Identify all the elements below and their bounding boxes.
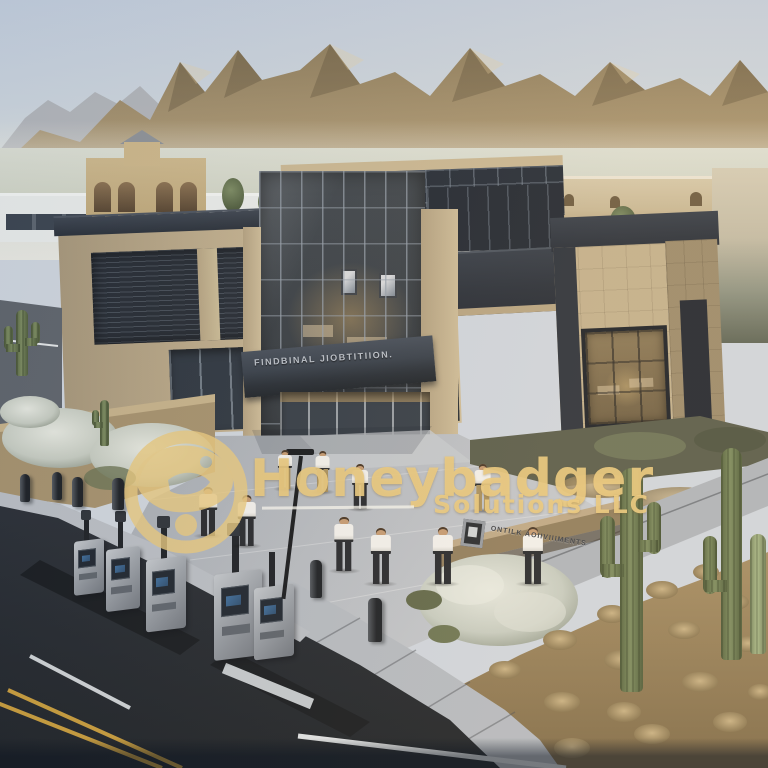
bollard (310, 560, 322, 598)
bollard (52, 472, 62, 500)
screen-decal (226, 595, 240, 607)
guard-legs (372, 553, 388, 584)
security-guard (333, 517, 355, 572)
screen-decal (156, 577, 168, 587)
bollard (20, 474, 30, 502)
kiosk-body (254, 584, 294, 661)
bottom-vignette (0, 738, 768, 768)
kiosk-slot (79, 573, 97, 581)
kiosk-slot (260, 629, 284, 639)
cactus-trunk (750, 534, 766, 654)
kiosk-screen (260, 596, 283, 623)
bush-highlight (494, 592, 566, 632)
saguaro-cactus (746, 534, 768, 654)
guard-legs (524, 553, 540, 584)
guard-torso (334, 524, 353, 542)
green-shrub (428, 625, 460, 643)
kiosk-screen (221, 584, 249, 617)
kiosk-screen (152, 568, 175, 595)
cactus-trunk (721, 448, 742, 660)
bollard (368, 598, 382, 642)
cactus-arm (25, 338, 37, 346)
rendered-scene: FINDBINAL JIOBTITIION. (0, 0, 768, 768)
access-kiosk (74, 516, 104, 596)
wall-plaque (460, 519, 485, 548)
plaque-screen (468, 526, 478, 537)
watermark-subtitle-text: Solutions LLC (402, 490, 650, 519)
bollard (72, 477, 83, 507)
kiosk-slot (111, 585, 131, 594)
saguaro-cactus (695, 448, 749, 660)
guard-torso (370, 535, 390, 554)
screen-decal (264, 605, 276, 615)
white-flowering-bush (0, 396, 60, 428)
kiosk-slot (152, 601, 176, 611)
kiosk-pole (269, 552, 275, 588)
screen-decal (115, 564, 125, 572)
cactus-arm (94, 422, 103, 428)
guard-legs (434, 553, 450, 584)
kiosk-screen (111, 557, 131, 580)
honeybadger-logo-icon (110, 428, 262, 560)
kiosk-slot (222, 624, 251, 636)
security-guard (431, 527, 454, 585)
cactus-arm (6, 344, 20, 352)
kiosk-screen (78, 548, 95, 568)
guard-torso (432, 535, 452, 554)
cactus-arm (602, 564, 624, 577)
cactus-arm (638, 540, 658, 552)
kiosk-body (74, 538, 104, 596)
screen-decal (82, 554, 90, 561)
security-guard (369, 528, 392, 585)
guard-legs (336, 541, 351, 571)
green-shrub (406, 590, 442, 610)
kiosk-body (146, 556, 186, 633)
kiosk-camera (81, 510, 91, 520)
cactus-arm (705, 580, 727, 592)
saguaro-cactus (4, 310, 40, 376)
